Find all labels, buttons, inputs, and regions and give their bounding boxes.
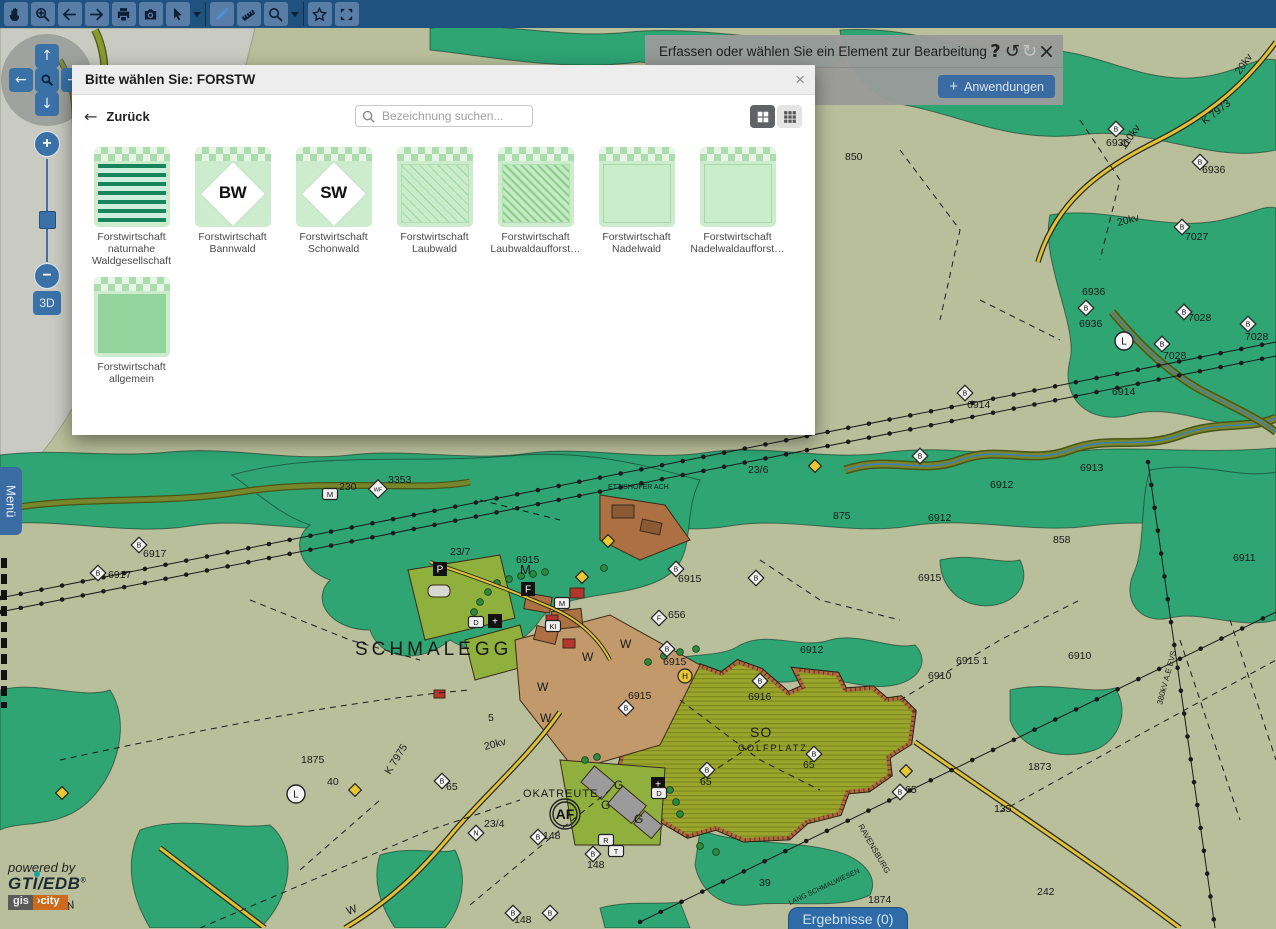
svg-text:SCHMALEGG: SCHMALEGG [355,639,512,660]
svg-text:B: B [674,567,679,574]
back-arrow-button[interactable] [58,2,82,26]
svg-text:6915: 6915 [678,573,702,585]
toolbar-divider [205,2,206,26]
svg-text:23/7: 23/7 [450,546,471,558]
checker-band [94,147,170,161]
svg-text:B: B [758,679,763,686]
svg-text:SO: SO [750,724,772,740]
pan-down-button[interactable]: ↓ [35,92,59,116]
svg-text:B: B [536,835,541,842]
svg-text:23/6: 23/6 [748,464,769,476]
branding: powered by GTI/EDB® gis›city [8,861,86,910]
symbol-tile-icon: BW [195,147,271,227]
symbol-tile[interactable]: Forstwirtschaft Laubwaldaufforst… [485,147,586,267]
tile-label: Forstwirtschaft Schonwald [284,231,384,255]
pan-up-button[interactable]: ↑ [35,44,59,68]
svg-text:D: D [656,789,662,798]
svg-text:G: G [614,778,623,792]
edit-message-bar: Erfassen oder wählen Sie ein Element zur… [645,35,1063,68]
tile-body [599,161,675,227]
screenshot-button[interactable] [139,2,163,26]
symbol-tile-icon [94,147,170,227]
back-button-label: Zurück [106,109,149,124]
zoom-out-button[interactable]: − [34,263,60,289]
svg-text:F: F [657,616,661,623]
main-toolbar [0,0,1276,28]
svg-text:B: B [511,911,516,918]
svg-text:B: B [754,576,759,583]
svg-text:B: B [591,852,596,859]
svg-text:ETTISHOFER ACH: ETTISHOFER ACH [608,484,669,491]
svg-text:148: 148 [543,830,561,842]
tile-body [700,161,776,227]
svg-text:G: G [634,812,643,826]
brand-logo: GTI/EDB® [8,875,86,893]
svg-text:KI: KI [549,622,556,631]
svg-text:7028: 7028 [1245,331,1269,343]
svg-text:AF: AF [556,806,575,822]
svg-text:L: L [293,790,299,801]
pan-center-button[interactable] [35,68,59,92]
svg-text:B: B [1246,322,1251,329]
svg-text:B: B [624,706,629,713]
tile-badge: BW [195,183,271,203]
svg-text:6914: 6914 [1112,386,1136,398]
dialog-title: Bitte wählen Sie: FORSTW [85,72,795,87]
svg-text:M: M [559,599,565,608]
svg-text:6936: 6936 [1079,318,1103,330]
hand-tool-button[interactable] [4,2,28,26]
checker-band [195,147,271,161]
plus-icon: + [949,78,958,95]
svg-text:W: W [582,650,594,664]
svg-text:6915: 6915 [663,656,687,668]
zoom-in-tool-button[interactable] [31,2,55,26]
svg-text:850: 850 [845,151,863,163]
svg-text:OKATREUTE: OKATREUTE [523,788,598,800]
svg-text:B: B [1180,225,1185,232]
svg-text:6912: 6912 [928,512,952,524]
svg-text:6915: 6915 [628,690,652,702]
tile-label: Forstwirtschaft Laubwald [385,231,485,255]
svg-text:65: 65 [700,776,712,788]
svg-text:23/4: 23/4 [484,818,505,830]
svg-text:6915: 6915 [918,572,942,584]
svg-text:65: 65 [905,784,917,796]
svg-text:WF: WF [374,488,383,494]
search-box[interactable] [355,105,533,127]
symbol-tile-icon [94,277,170,357]
svg-text:858: 858 [1053,534,1071,546]
tile-badge: SW [296,183,372,203]
tile-body [498,161,574,227]
svg-text:B: B [137,543,142,550]
svg-text:B: B [1084,306,1089,313]
tile-body [94,291,170,357]
svg-text:GOLFPLATZ: GOLFPLATZ [738,743,808,753]
svg-text:B: B [96,571,101,578]
symbol-tile[interactable]: BWForstwirtschaft Bannwald [182,147,283,267]
search-button[interactable] [264,2,288,26]
svg-text:6913: 6913 [1080,462,1104,474]
symbol-tile-icon: SW [296,147,372,227]
zoom-in-button[interactable]: + [34,131,60,157]
svg-text:6914: 6914 [967,399,991,411]
favorites-star-button[interactable] [308,2,332,26]
gis-app: { "colors":{"toolbar_bg":"#20527f","butt… [0,0,1276,928]
tile-label: Forstwirtschaft allgemein [82,361,182,385]
close-message-icon[interactable]: × [1038,39,1055,63]
svg-text:B: B [812,752,817,759]
svg-text:B: B [898,790,903,797]
brand-dot [34,871,40,877]
magnifier-icon [40,73,54,87]
tile-label: Forstwirtschaft Laubwaldaufforst… [486,231,586,255]
back-button[interactable]: ← Zurück [84,107,150,126]
svg-text:135: 135 [994,803,1012,815]
pan-left-button[interactable]: ← [9,68,33,92]
tile-label: Forstwirtschaft Nadelwaldaufforst… [688,231,788,255]
svg-text:M: M [520,562,531,577]
search-dropdown-caret[interactable] [291,12,299,17]
symbol-tile[interactable]: Forstwirtschaft allgemein [81,277,182,385]
svg-text:5: 5 [488,712,494,724]
tile-label: Forstwirtschaft Nadelwald [587,231,687,255]
svg-text:L: L [1121,337,1127,348]
tile-body: BW [195,161,271,227]
checker-band [498,147,574,161]
tile-label: Forstwirtschaft Bannwald [183,231,283,255]
fullscreen-button[interactable] [335,2,359,26]
zoom-slider-handle[interactable] [39,211,56,229]
svg-text:B: B [1198,160,1203,167]
svg-text:F: F [525,585,531,596]
select-cursor-button[interactable] [166,2,190,26]
svg-text:B: B [1160,342,1165,349]
svg-text:40: 40 [327,776,339,788]
gis-city-badge: gis›city [8,895,68,910]
search-icon [362,110,375,123]
svg-text:6915 1: 6915 1 [956,655,988,667]
svg-text:G: G [601,798,610,812]
symbol-tile[interactable]: Forstwirtschaft Nadelwald [586,147,687,267]
checker-band [397,147,473,161]
svg-text:39: 39 [759,877,771,889]
svg-text:148: 148 [587,859,605,871]
grid-view-icon [756,110,770,124]
svg-text:1873: 1873 [1028,761,1052,773]
powered-by-text: powered by [8,861,86,875]
svg-text:7028: 7028 [1163,350,1187,362]
view-toggle [750,105,802,128]
svg-text:6911: 6911 [1233,552,1256,564]
edit-message-text: Erfassen oder wählen Sie ein Element zur… [659,44,987,59]
svg-text:B: B [440,779,445,786]
checker-band [296,147,372,161]
svg-text:B: B [1182,310,1187,317]
back-arrow-icon: ← [84,107,97,126]
svg-text:7027: 7027 [1185,231,1209,243]
applications-button[interactable]: + Anwendungen [938,75,1055,98]
svg-text:W: W [540,711,552,725]
symbol-tile[interactable]: Forstwirtschaft Laubwald [384,147,485,267]
dialog-controls: ← Zurück [72,95,815,139]
symbol-tile[interactable]: SWForstwirtschaft Schonwald [283,147,384,267]
svg-text:242: 242 [1037,886,1055,898]
svg-text:W: W [620,637,632,651]
search-input[interactable] [380,108,526,124]
checker-band [94,277,170,291]
svg-text:R: R [603,836,609,845]
svg-text:6912: 6912 [800,644,824,656]
forward-arrow-button[interactable] [85,2,109,26]
svg-text:H: H [682,672,688,681]
checker-band [700,147,776,161]
svg-text:656: 656 [668,609,686,621]
dialog-header: Bitte wählen Sie: FORSTW × [72,65,815,95]
tile-body [397,161,473,227]
svg-text:6936: 6936 [1202,164,1226,176]
grid-view-button[interactable] [750,105,775,128]
menu-tab-label: Menü [4,485,19,518]
svg-text:6910: 6910 [928,670,952,682]
select-cursor-dropdown-caret[interactable] [193,12,201,17]
dense-grid-view-button[interactable] [777,105,802,128]
3d-view-button[interactable]: 3D [33,291,61,315]
redo-icon: ↻ [1021,39,1038,63]
svg-text:7028: 7028 [1188,312,1212,324]
svg-text:W: W [537,680,549,694]
menu-tab[interactable]: Menü [0,467,22,535]
dialog-close-icon[interactable]: × [795,71,805,88]
svg-text:1875: 1875 [301,754,325,766]
dense-grid-view-icon [783,110,797,124]
svg-text:B: B [665,647,670,654]
svg-text:D: D [473,618,479,627]
symbol-tile-icon [700,147,776,227]
svg-text:B: B [918,454,923,461]
undo-icon[interactable]: ↺ [1004,39,1021,63]
svg-text:875: 875 [833,510,851,522]
symbol-tile-grid: Forstwirtschaft naturnahe Waldgesellscha… [72,139,811,395]
measure-ruler-button[interactable] [237,2,261,26]
draw-pencil-button[interactable] [210,2,234,26]
svg-text:B: B [1114,127,1119,134]
svg-text:B: B [548,911,553,918]
symbol-picker-dialog: Bitte wählen Sie: FORSTW × ← Zurück [72,65,815,435]
svg-text:230: 230 [339,481,357,493]
tile-body: SW [296,161,372,227]
svg-text:6917: 6917 [143,548,167,560]
svg-text:6916: 6916 [748,691,772,703]
svg-text:3353: 3353 [388,474,412,486]
svg-text:M: M [327,490,333,499]
checker-band [599,147,675,161]
svg-text:1874: 1874 [868,894,892,906]
symbol-tile[interactable]: Forstwirtschaft Nadelwaldaufforst… [687,147,788,267]
tile-body [94,161,170,227]
toolbar-divider [303,2,304,26]
symbol-tile-icon [599,147,675,227]
svg-text:B: B [963,391,968,398]
symbol-tile[interactable]: Forstwirtschaft naturnahe Waldgesellscha… [81,147,182,267]
svg-text:P: P [437,565,444,576]
svg-text:6912: 6912 [990,479,1014,491]
svg-text:+: + [492,617,498,628]
print-button[interactable] [112,2,136,26]
symbol-tile-icon [397,147,473,227]
svg-text:B: B [705,768,710,775]
svg-text:N: N [473,831,478,838]
symbol-tile-icon [498,147,574,227]
svg-text:6910: 6910 [1068,650,1092,662]
tile-label: Forstwirtschaft naturnahe Waldgesellscha… [82,231,182,267]
applications-button-label: Anwendungen [964,80,1044,94]
svg-text:6917: 6917 [108,569,132,581]
help-icon[interactable]: ? [987,39,1004,63]
results-button[interactable]: Ergebnisse (0) [788,907,908,929]
svg-text:T: T [614,847,619,856]
svg-text:6936: 6936 [1082,286,1106,298]
